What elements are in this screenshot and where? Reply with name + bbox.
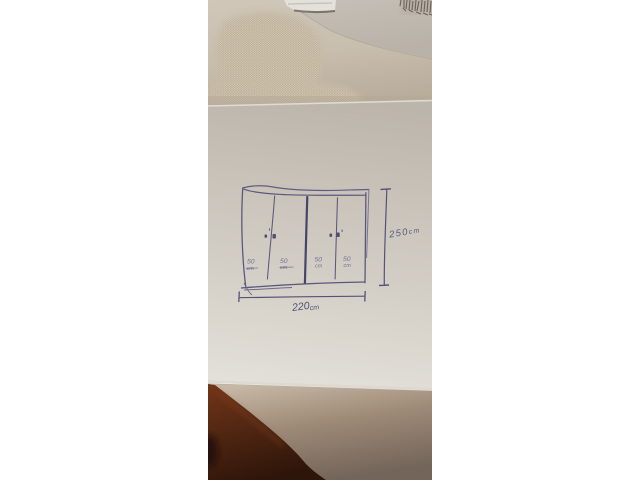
svg-text:cm: cm [247,266,255,272]
svg-text:cm: cm [344,263,352,269]
svg-text:50: 50 [280,258,288,265]
svg-text:cm: cm [315,264,323,270]
svg-text:cm: cm [280,265,288,271]
svg-text:50: 50 [343,256,351,263]
svg-text:50: 50 [247,259,255,266]
svg-text:50: 50 [315,257,323,264]
